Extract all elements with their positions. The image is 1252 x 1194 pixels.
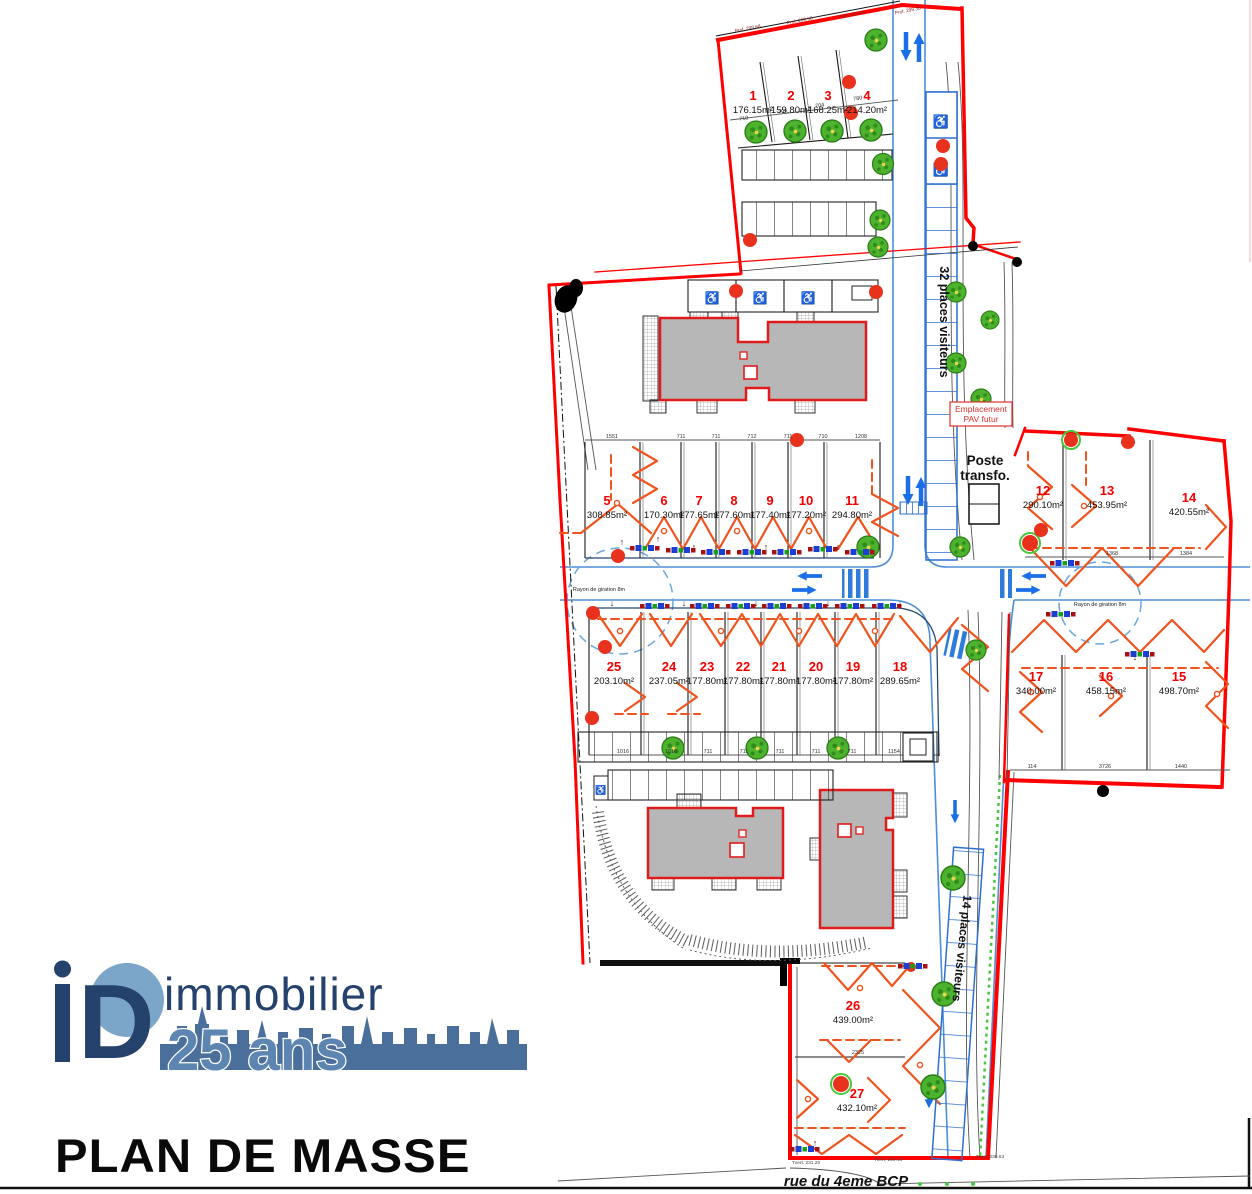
svg-text:↑: ↑ [692, 542, 697, 552]
svg-text:712: 712 [747, 434, 756, 440]
turning-radius-label: Rayon de giration 8m [573, 587, 626, 593]
building-north [643, 304, 866, 413]
svg-text:780: 780 [853, 95, 863, 103]
lot-13-label: 13453.95m² [1087, 483, 1127, 511]
lot-20-label: 20177.80m² [796, 659, 836, 687]
page-title: PLAN DE MASSE [55, 1128, 544, 1183]
svg-text:1440: 1440 [1175, 764, 1187, 770]
turning-radius-label: Rayon de giration 8m [1074, 602, 1127, 608]
svg-text:1016: 1016 [665, 749, 677, 755]
svg-text:711: 711 [712, 434, 721, 440]
lot-21-label: 21177.80m² [759, 659, 799, 687]
svg-text:↑: ↑ [656, 534, 661, 544]
logo-anniversary-text: 25 ans [167, 1018, 348, 1083]
svg-text:710: 710 [818, 434, 827, 440]
svg-text:↑: ↑ [836, 542, 841, 552]
svg-text:711: 711 [704, 749, 713, 755]
lot-1-label: 1176.15m² [733, 88, 773, 116]
roads [558, 0, 1250, 1186]
svg-text:114: 114 [1028, 764, 1037, 770]
logo-monogram-d: D [78, 963, 155, 1081]
svg-text:Tvert. 230.48: Tvert. 230.48 [874, 1157, 903, 1163]
visitors-north-label: 32 places visiteurs [937, 266, 951, 377]
svg-text:711: 711 [776, 749, 785, 755]
handicap-icon: ♿ [753, 291, 768, 305]
lot-24-label: 24237.05m² [649, 659, 689, 687]
svg-text:711: 711 [848, 749, 857, 755]
handicap-icon: ♿ [705, 291, 720, 305]
svg-text:2325: 2325 [852, 1050, 864, 1056]
handicap-icon: ♿ [595, 784, 606, 795]
svg-text:PAV futur: PAV futur [963, 414, 998, 424]
svg-text:↑: ↑ [620, 537, 625, 547]
slope-hatching [690, 940, 868, 952]
building-southeast [810, 790, 907, 928]
lot-12-label: 12290.10m² [1023, 483, 1063, 511]
lot-26-label: 26439.00m² [833, 998, 873, 1026]
svg-text:3726: 3726 [1099, 764, 1111, 770]
lot-18-label: 18289.65m² [880, 659, 920, 687]
transformer-label: transfo. [960, 468, 1010, 483]
lot-8-label: 8177.60m² [714, 493, 754, 521]
svg-text:↓: ↓ [610, 598, 615, 608]
svg-text:Tvert. 230.63: Tvert. 230.63 [976, 1154, 1005, 1160]
svg-text:↓: ↓ [682, 598, 687, 608]
svg-text:↑: ↑ [764, 542, 769, 552]
company-logo: D immobilier 25 ans [52, 948, 542, 1118]
svg-text:710: 710 [739, 115, 749, 123]
svg-text:711: 711 [812, 749, 821, 755]
lot-14-label: 14420.55m² [1169, 490, 1209, 518]
svg-text:Tvert. 231.20: Tvert. 231.20 [792, 1160, 821, 1166]
lot-16-label: 16458.15m² [1086, 669, 1126, 697]
svg-text:↓: ↓ [754, 598, 759, 608]
logo-i-stem [55, 984, 70, 1062]
turning-circle-west [567, 548, 673, 654]
transformer-building [969, 484, 999, 524]
svg-text:711: 711 [677, 434, 686, 440]
svg-text:1551: 1551 [606, 434, 618, 440]
svg-text:1154: 1154 [888, 749, 900, 755]
svg-text:1384: 1384 [1180, 551, 1192, 557]
svg-text:Prof. 299.44: Prof. 299.44 [838, 10, 865, 21]
lot-25-label: 25203.10m² [594, 659, 634, 687]
lot-15-label: 15498.70m² [1159, 669, 1199, 697]
svg-text:711: 711 [784, 434, 793, 440]
svg-text:1016: 1016 [617, 749, 629, 755]
logo-brand-text: immobilier [164, 968, 384, 1020]
svg-text:↓: ↓ [898, 598, 903, 608]
parking-areas: ♿ ♿ ♿ ♿ ♿ ♿ [578, 92, 984, 1161]
lot-9-label: 9177.40m² [750, 493, 790, 521]
street-label: rue du 4eme BCP [784, 1173, 909, 1190]
svg-text:↓: ↓ [826, 598, 831, 608]
lot-19-label: 19177.80m² [833, 659, 873, 687]
handicap-icon: ♿ [933, 114, 949, 129]
handicap-parking-row: ♿ ♿ ♿ [688, 280, 878, 312]
pav-future-box: Emplacement PAV futur [950, 402, 1012, 426]
logo-i-dot [54, 961, 71, 978]
transformer-label: Poste [967, 453, 1004, 468]
site-plan-page: ♿ ♿ ♿ ♿ ♿ ♿ [0, 0, 1252, 1194]
handicap-icon: ♿ [801, 291, 816, 305]
building-southwest [648, 794, 783, 890]
svg-text:Emplacement: Emplacement [955, 404, 1008, 414]
lot-23-label: 23177.80m² [687, 659, 727, 687]
lot-22-label: 22177.80m² [723, 659, 763, 687]
svg-text:↓: ↓ [1133, 652, 1138, 662]
svg-text:711: 711 [740, 749, 749, 755]
lot-11-label: 11294.80m² [832, 493, 872, 521]
svg-text:1368: 1368 [1106, 551, 1118, 557]
lot-10-label: 10177.20m² [786, 493, 826, 521]
svg-text:1208: 1208 [855, 434, 867, 440]
svg-text:↑: ↑ [813, 1138, 818, 1148]
